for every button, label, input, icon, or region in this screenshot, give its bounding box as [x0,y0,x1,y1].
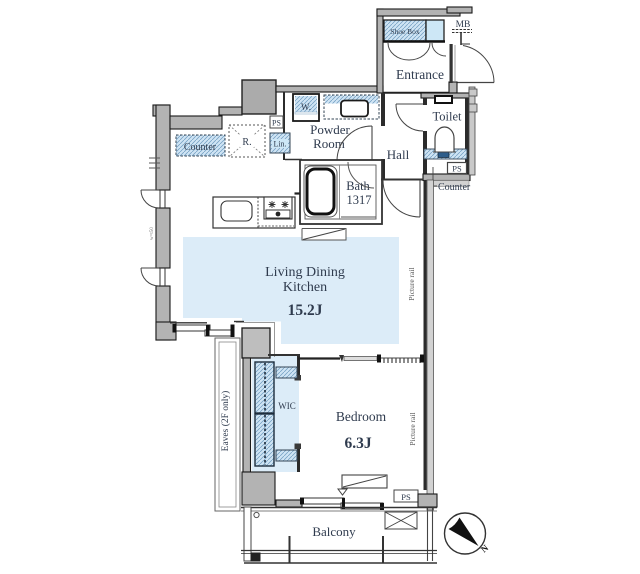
svg-text:Powder: Powder [310,122,350,137]
svg-text:Picture rail: Picture rail [407,267,416,300]
svg-text:R.: R. [242,137,251,148]
svg-text:PS: PS [272,119,281,128]
svg-text:Eaves (2F only): Eaves (2F only) [220,391,231,452]
svg-text:6.3J: 6.3J [344,435,371,452]
svg-text:Toilet: Toilet [433,110,463,124]
svg-text:Lin.: Lin. [273,140,286,149]
svg-text:15.2J: 15.2J [288,302,323,319]
svg-text:W.: W. [301,102,311,112]
svg-text:Picture rail: Picture rail [408,412,417,445]
svg-text:Entrance: Entrance [396,67,444,82]
svg-text:Balcony: Balcony [312,524,356,539]
svg-text:Counter: Counter [438,182,471,193]
svg-text:w=t50: w=t50 [150,227,155,240]
svg-text:WIC: WIC [278,401,296,411]
svg-text:PS: PS [452,164,462,174]
svg-text:Living Dining: Living Dining [265,265,345,280]
svg-text:Counter: Counter [184,142,217,153]
svg-text:PS: PS [401,492,411,502]
svg-text:Hall: Hall [387,147,410,162]
svg-text:1317: 1317 [347,193,372,207]
svg-text:Room: Room [313,136,345,151]
svg-text:Shoe Box: Shoe Box [390,27,420,36]
svg-text:Bedroom: Bedroom [336,409,387,424]
svg-text:Kitchen: Kitchen [283,280,327,295]
svg-text:Bath: Bath [346,179,370,193]
svg-text:MB: MB [456,20,471,30]
